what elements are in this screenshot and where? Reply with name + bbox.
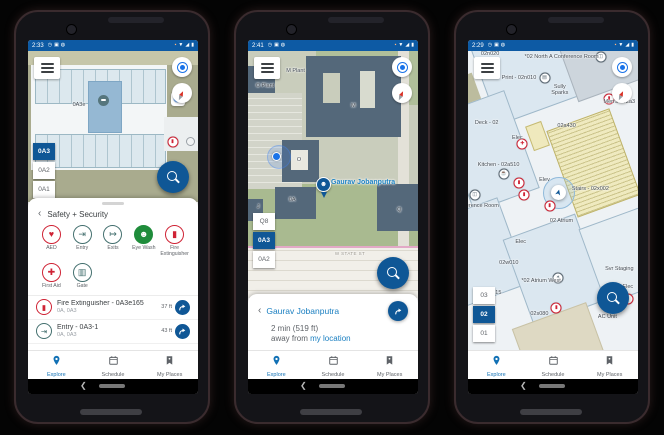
map-label: 0A3e [73,102,86,108]
gate-icon: ▥ [73,263,92,282]
android-navigation-bar: ❮ [248,378,418,394]
battery-icon: ▮ [411,43,414,48]
speaker-grill [548,17,604,23]
category-label: AED [36,246,67,252]
locate-icon [397,62,408,73]
map-label: *02 North A Conference Room [525,54,599,60]
battery-icon: ▮ [631,43,634,48]
result-subtitle: 0A, 0A3 [57,332,156,338]
tab-my-places[interactable]: My Places [361,351,418,379]
vpn-icon: ◍ [281,43,285,48]
away-text: away from my location [248,333,418,343]
blocked-room-icon [98,95,109,106]
result-distance: 37 ft [161,304,172,310]
result-text: Entry - 0A3-10A, 0A3 [57,324,156,338]
exits-icon: ↦ [103,225,122,244]
tab-schedule[interactable]: Schedule [525,351,582,379]
floor-option-03[interactable]: 03 [473,287,495,304]
person-icon: ☻ [316,177,331,192]
category-eye-wash[interactable]: ☻Eye Wash [128,225,159,258]
floor-option-0A3[interactable]: 0A3 [33,143,55,160]
compass-button[interactable] [612,83,632,103]
android-home-pill[interactable] [539,384,565,388]
android-back-icon[interactable]: ❮ [520,382,527,390]
category-fire-extinguisher[interactable]: ▮Fire Extinguisher [159,225,190,258]
screenshot-canvas: 2:33 ◷▣◍ ▪▼◢▮ ▮ [0,0,664,434]
phone-frame-3: 2:29 ◷▣◍ ▪▼◢▮ ➤ [454,10,650,424]
compass-needle-icon [399,90,405,96]
map-label: 02a430 [557,123,575,129]
result-meta: 37 ft [161,300,190,315]
tab-my-places[interactable]: My Places [581,351,638,379]
category-exits[interactable]: ↦Exits [98,225,129,258]
map-label: Conference Room [468,203,499,209]
building [336,108,356,138]
image-icon: ▣ [274,43,279,48]
tab-label: Schedule [322,372,345,378]
hamburger-menu-icon[interactable] [34,57,60,79]
alarm-icon: ◷ [488,43,492,48]
bookmark-icon [604,353,615,371]
elevator-area [525,121,550,151]
map-label: 02 Atrium [550,218,573,224]
calendar-icon [328,353,339,371]
map-label: 02s080 [530,311,548,317]
bottom-sheet: ‹ Gaurav Jobanputra 2 min (519 ft) away … [248,294,418,350]
result-meta: 43 ft [161,324,190,339]
indoor-floor-map[interactable]: ➤ ◫▤▮✚☕▮▮▮◫✶▮▮ 02n020*02 North A Confere… [468,51,638,350]
map-label: *02 Atrium West [521,278,560,284]
screen-1: 2:33 ◷▣◍ ▪▼◢▮ ▮ [28,40,198,394]
phone-frame-2: 2:41 ◷▣◍ ▪▼◢▮ [234,10,430,424]
map-label: M [351,103,356,109]
result-subtitle: 0A, 0A3 [57,308,156,314]
compass-needle-icon [179,90,185,96]
compass-button[interactable] [392,83,412,103]
status-time: 2:33 [32,43,44,49]
tab-my-places[interactable]: My Places [141,351,198,379]
kitchen-icon: ☕ [498,168,509,179]
android-navigation-bar: ❮ [28,378,198,394]
eta-text: 2 min (519 ft) [248,322,418,333]
android-home-pill[interactable] [319,384,345,388]
my-location-dot-icon [272,152,281,161]
status-bar: 2:41 ◷▣◍ ▪▼◢▮ [248,40,418,51]
screenshot-icon: ▪ [175,43,177,48]
tab-schedule[interactable]: Schedule [85,351,142,379]
battery-icon: ▮ [191,43,194,48]
fire-extinguisher-icon: ▮ [514,177,525,188]
entry-icon: ⇥ [73,225,92,244]
map-label: Kitchen - 02a510 [478,162,520,168]
map-pin-icon [51,353,62,371]
phone-frame-1: 2:33 ◷▣◍ ▪▼◢▮ ▮ [14,10,210,424]
wifi-icon: ▼ [618,43,623,48]
floor-option-01[interactable]: 01 [473,325,495,342]
camera-icon [66,24,77,35]
android-back-icon[interactable]: ❮ [300,382,307,390]
entry-icon: ⇥ [36,323,52,339]
hamburger-menu-icon[interactable] [474,57,500,79]
map-label: Print - 02n010 [502,75,537,81]
hamburger-menu-icon[interactable] [254,57,280,79]
signal-icon: ◢ [185,43,189,48]
screenshot-icon: ▪ [615,43,617,48]
category-label: Fire Extinguisher [159,246,190,258]
map-pin-icon [271,353,282,371]
map-label: Deck - 02 [475,120,499,126]
map-label: AC Unit [598,314,617,320]
tab-label: Explore [47,372,66,378]
fire-extinguisher-icon: ▮ [544,201,555,212]
bookmark-icon [384,353,395,371]
alarm-icon: ◷ [48,43,52,48]
person-pin[interactable]: ☻ Gaurav Jobanputra [316,177,331,198]
android-back-icon[interactable]: ❮ [80,382,87,390]
screen-2: 2:41 ◷▣◍ ▪▼◢▮ [248,40,418,394]
directions-button[interactable] [388,301,408,321]
away-prefix: away from [271,334,310,343]
category-label: Exits [98,246,129,252]
fire-extinguisher-icon: ▮ [167,136,178,147]
camera-icon [506,24,517,35]
campus-map[interactable]: ☻ Gaurav Jobanputra M PlantO PlantMO0AJQ… [248,51,418,298]
floor-option-0A3[interactable]: 0A3 [253,232,275,249]
building [275,187,316,219]
result-distance: 43 ft [161,328,172,334]
my-location-button[interactable] [172,57,192,77]
tab-label: My Places [597,372,622,378]
map-label: O Plant [256,83,274,89]
tab-label: Explore [267,372,286,378]
my-location-button[interactable] [612,57,632,77]
search-button[interactable] [157,161,189,193]
speaker-grill [108,17,164,23]
search-icon [167,171,177,181]
category-entry[interactable]: ⇥Entry [67,225,98,258]
category-first-aid[interactable]: ✚First Aid [36,263,67,290]
search-icon [387,267,397,277]
map-pin-icon [491,353,502,371]
fire-extinguisher-icon: ▮ [165,225,184,244]
category-gate[interactable]: ▥Gate [67,263,98,290]
status-bar: 2:33 ◷▣◍ ▪▼◢▮ [28,40,198,51]
camera-icon [286,24,297,35]
back-icon[interactable]: ‹ [258,306,261,316]
pin-tail [321,192,327,198]
tab-explore[interactable]: Explore [468,351,525,379]
calendar-icon [108,353,119,371]
back-icon[interactable]: ‹ [38,209,41,219]
signal-icon: ◢ [405,43,409,48]
fire-extinguisher-icon: ▮ [519,189,530,200]
printer-icon: ▤ [539,72,550,83]
floor-option-0A2[interactable]: 0A2 [253,251,275,268]
fire-extinguisher-icon: ▮ [551,303,562,314]
conference-icon: ◫ [469,189,480,200]
map-label: Elec [512,135,523,141]
tab-explore[interactable]: Explore [248,351,305,379]
image-icon: ▣ [54,43,59,48]
my-location-button[interactable] [392,57,412,77]
map-label: 0A [289,197,296,203]
result-title: Entry - 0A3-1 [57,324,156,331]
result-row[interactable]: ▮Fire Extinguisher - 0A3e1650A, 0A337 ft [28,296,198,320]
locate-icon [177,62,188,73]
map-label: Elec [515,239,526,245]
my-location-link[interactable]: my location [310,334,350,343]
tab-label: My Places [377,372,402,378]
vpn-icon: ◍ [61,43,65,48]
search-icon [607,292,617,302]
floor-option-0A1[interactable]: 0A1 [33,181,55,198]
category-label: Gate [67,284,98,290]
calendar-icon [548,353,559,371]
status-time: 2:41 [252,43,264,49]
status-time: 2:29 [472,43,484,49]
wifi-icon: ▼ [398,43,403,48]
floor-option-Q8[interactable]: Q8 [253,213,275,230]
directions-button[interactable] [175,324,190,339]
bottom-sheet: ‹ Safety + Security ♥AED⇥Entry↦Exits☻Eye… [28,198,198,350]
first-aid-icon: ✚ [42,263,61,282]
image-icon: ▣ [494,43,499,48]
result-title: Fire Extinguisher - 0A3e165 [57,300,156,307]
search-button[interactable] [377,257,409,289]
search-button[interactable] [597,282,629,314]
category-aed[interactable]: ♥AED [36,225,67,258]
category-label: Eye Wash [128,246,159,252]
map-label: Q [397,207,401,213]
bookmark-icon [164,353,175,371]
person-name-link[interactable]: Gaurav Jobanputra [266,306,383,316]
locate-icon [617,62,628,73]
screen-3: 2:29 ◷▣◍ ▪▼◢▮ ➤ [468,40,638,394]
tab-label: My Places [157,372,182,378]
eye-wash-icon: ☻ [134,225,153,244]
vpn-icon: ◍ [501,43,505,48]
map-label: M Plant [286,68,305,74]
compass-button[interactable] [172,83,192,103]
sheet-title: Safety + Security [47,210,108,219]
result-row[interactable]: ⇥Entry - 0A3-10A, 0A343 ft [28,320,198,344]
category-label: First Aid [36,284,67,290]
android-home-pill[interactable] [99,384,125,388]
map-label: J [257,204,260,210]
floor-option-0A2[interactable]: 0A2 [33,162,55,179]
courtyard [323,73,340,103]
result-text: Fire Extinguisher - 0A3e1650A, 0A3 [57,300,156,314]
android-navigation-bar: ❮ [468,378,638,394]
aed-icon: ♥ [42,225,61,244]
bottom-speaker [520,409,582,415]
map-label: Stairs - 02x002 [572,186,609,192]
tab-label: Schedule [102,372,125,378]
map-label: Sully Sparks [551,84,569,97]
directions-button[interactable] [175,300,190,315]
alarm-icon: ◷ [268,43,272,48]
map-label: O [297,157,301,163]
heading-arrow-icon: ➤ [551,185,566,200]
tab-explore[interactable]: Explore [28,351,85,379]
tab-label: Schedule [542,372,565,378]
map-label: Elev [539,177,550,183]
signal-icon: ◢ [625,43,629,48]
compass-needle-icon [619,90,625,96]
map-label: 02w010 [499,260,518,266]
bottom-speaker [80,409,142,415]
speaker-grill [328,17,384,23]
fire-extinguisher-icon: ▮ [36,299,52,315]
highlighted-room[interactable] [88,81,122,133]
person-pin-label: Gaurav Jobanputra [331,179,395,186]
wifi-icon: ▼ [178,43,183,48]
floor-option-02[interactable]: 02 [473,306,495,323]
screenshot-icon: ▪ [395,43,397,48]
courtyard [360,71,375,108]
indoor-floor-map[interactable]: ▮ 0A3e 0A30A20A1 [28,51,198,202]
tab-schedule[interactable]: Schedule [305,351,362,379]
category-label: Entry [67,246,98,252]
status-bar: 2:29 ◷▣◍ ▪▼◢▮ [468,40,638,51]
bottom-speaker [300,409,362,415]
map-label: W STATE ST [335,251,365,256]
tab-label: Explore [487,372,506,378]
map-label: Svr Staging [605,266,633,272]
